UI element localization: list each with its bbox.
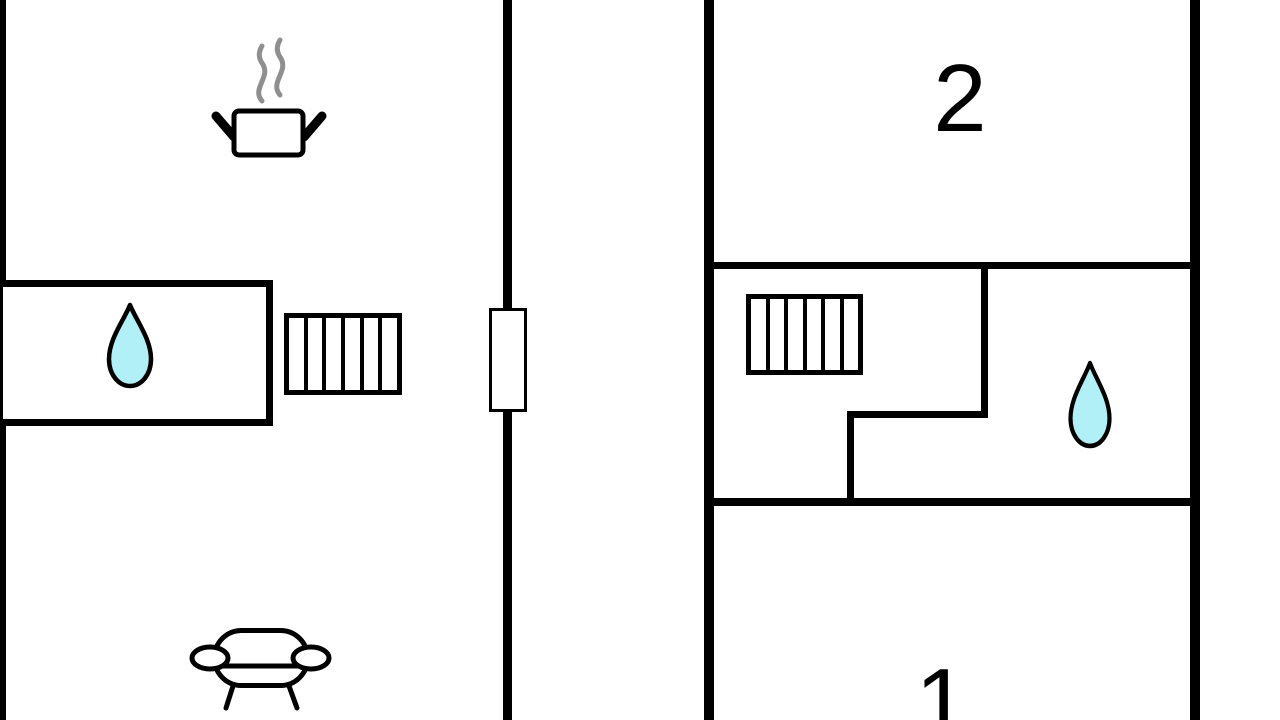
bathroom-partition-wall-upper [981,262,988,418]
stair-tread [788,299,803,370]
bathroom-partition-wall-lower [847,411,854,506]
stairs-icon [284,313,402,395]
water-drop-icon [102,302,158,390]
stairs-icon [746,294,863,375]
stair-tread [751,299,766,370]
water-drop-shape [109,305,151,386]
room2-bottom-wall [704,262,1200,269]
sofa-armrest-left [192,647,228,669]
room-1-label: 1 [882,650,1002,720]
water-drop-shape [1071,363,1110,446]
stair-tread [382,318,397,390]
door-opening [489,308,527,412]
stair-tread [326,318,341,390]
stair-tread [770,299,785,370]
right-unit-right-wall [1190,0,1200,720]
pot-handle-left [216,116,234,137]
sofa-armrest-right [293,647,329,669]
pot-body [216,111,322,155]
stair-tread [345,318,360,390]
steam-lines [259,40,283,101]
stair-tread [308,318,323,390]
right-unit-left-wall [704,0,714,720]
stair-tread [825,299,840,370]
room1-top-wall [704,498,1200,506]
room-2-label: 2 [900,46,1020,152]
pot-handle-right [304,116,322,137]
water-drop-icon [1064,360,1116,450]
stair-tread [364,318,379,390]
sofa-leg-left [226,686,233,708]
sofa-icon [185,620,335,715]
sofa-leg-right [289,686,297,708]
bathroom-partition-wall-jog [847,411,988,418]
stair-tread [807,299,822,370]
cooking-pot-icon [200,30,350,170]
floor-plan: 2 1 [0,0,1280,720]
stair-tread [289,318,304,390]
stair-tread [844,299,859,370]
